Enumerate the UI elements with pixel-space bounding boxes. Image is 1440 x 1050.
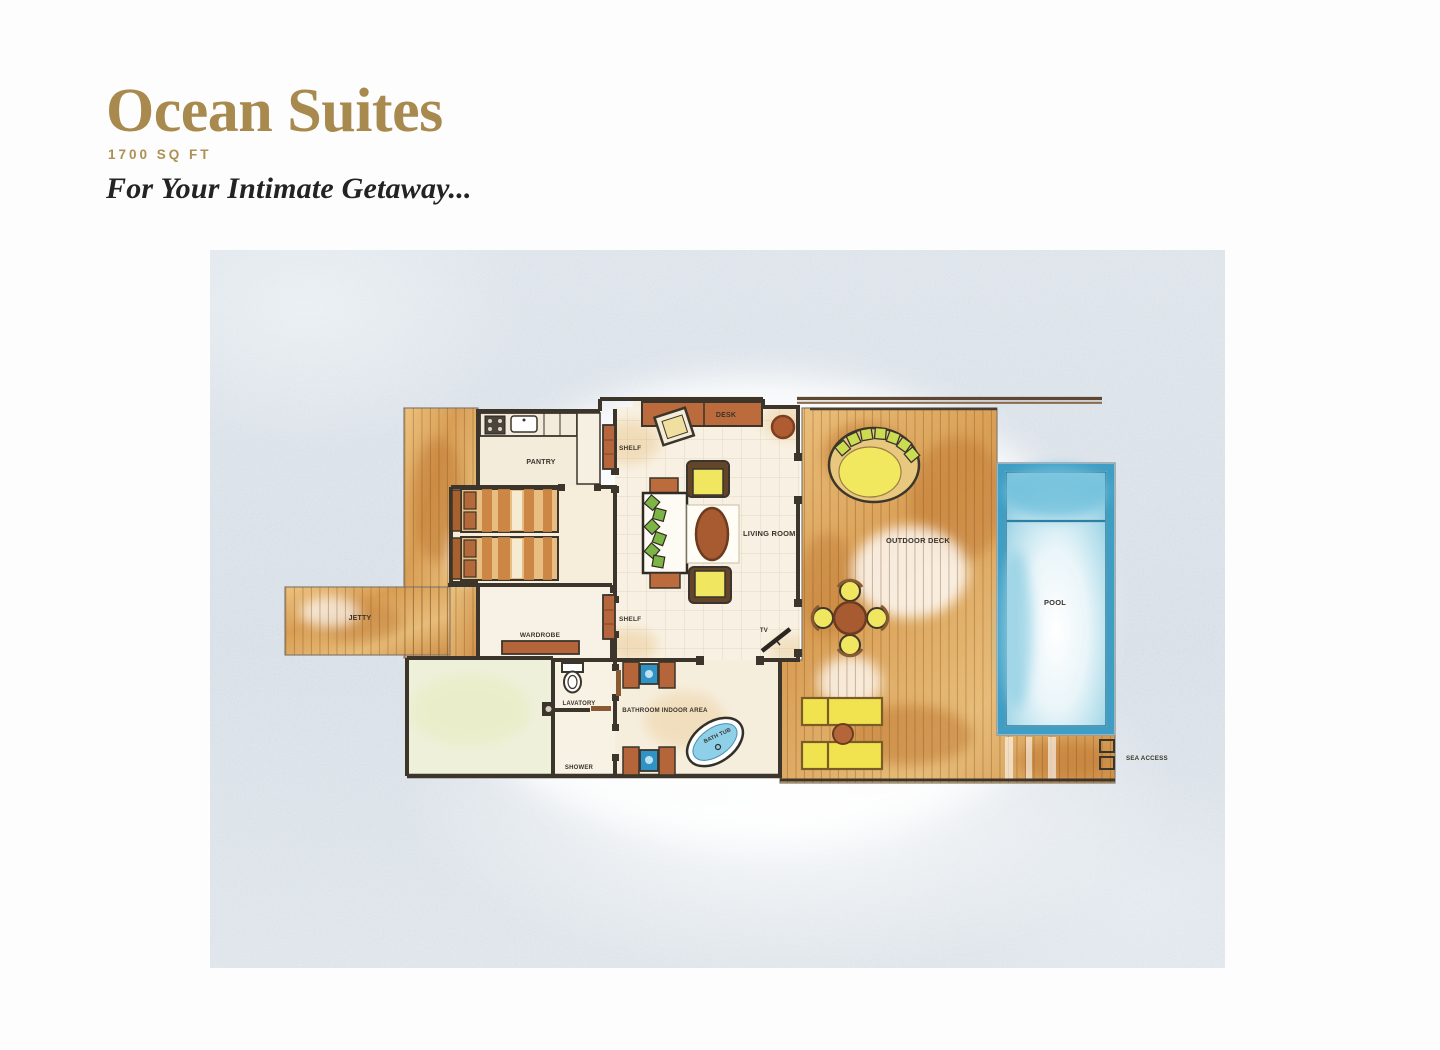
- label-outdoor-deck: OUTDOOR DECK: [886, 536, 950, 545]
- shower-fixture: [542, 702, 555, 716]
- pantry-cabinet: [577, 413, 600, 484]
- bed-2: [452, 537, 558, 580]
- armchair-top: [687, 461, 729, 497]
- label-shower: SHOWER: [565, 765, 594, 771]
- pool: POOL: [997, 463, 1115, 735]
- armchair-bottom: [689, 567, 731, 603]
- vanity-bottom: [623, 747, 675, 775]
- lavatory-shower-floor: [553, 660, 615, 778]
- toilet: [562, 663, 583, 693]
- label-lavatory: LAVATORY: [563, 701, 596, 707]
- label-pantry: PANTRY: [526, 459, 555, 466]
- bed-1: [452, 489, 558, 532]
- area-subtitle: 1700 SQ FT: [108, 147, 212, 162]
- label-desk: DESK: [716, 412, 736, 419]
- floor-plan-figure: POOL SEA ACCESS: [210, 250, 1225, 968]
- label-shelf-bottom: SHELF: [619, 616, 641, 623]
- vanity-top: [623, 662, 675, 688]
- stove: [485, 416, 505, 434]
- brochure-page: { "header": { "title": "Ocean Suites", "…: [0, 0, 1440, 1050]
- label-sea-access: SEA ACCESS: [1126, 755, 1168, 762]
- label-pool: POOL: [1044, 598, 1066, 607]
- lounger-side-table: [833, 724, 853, 744]
- label-shelf-top: SHELF: [619, 445, 641, 452]
- side-table-top: [650, 478, 678, 493]
- label-bathroom-indoor-area: BATHROOM INDOOR AREA: [622, 707, 708, 714]
- label-wardrobe: WARDROBE: [520, 632, 561, 639]
- page-title: Ocean Suites: [106, 80, 443, 142]
- dining-table: [834, 602, 866, 634]
- pouf-stool: [772, 416, 794, 438]
- label-tv: TV: [760, 628, 768, 634]
- kitchen-sink: [511, 416, 537, 432]
- tagline: For Your Intimate Getaway...: [106, 172, 472, 206]
- label-living-room: LIVING ROOM: [743, 529, 796, 538]
- coffee-table: [696, 508, 728, 560]
- daybed-cushion: [839, 447, 901, 497]
- floor-plan-svg: POOL SEA ACCESS: [210, 250, 1225, 968]
- side-table-bottom: [650, 573, 680, 588]
- label-jetty: JETTY: [349, 615, 372, 622]
- wardrobe-chest: [502, 641, 579, 654]
